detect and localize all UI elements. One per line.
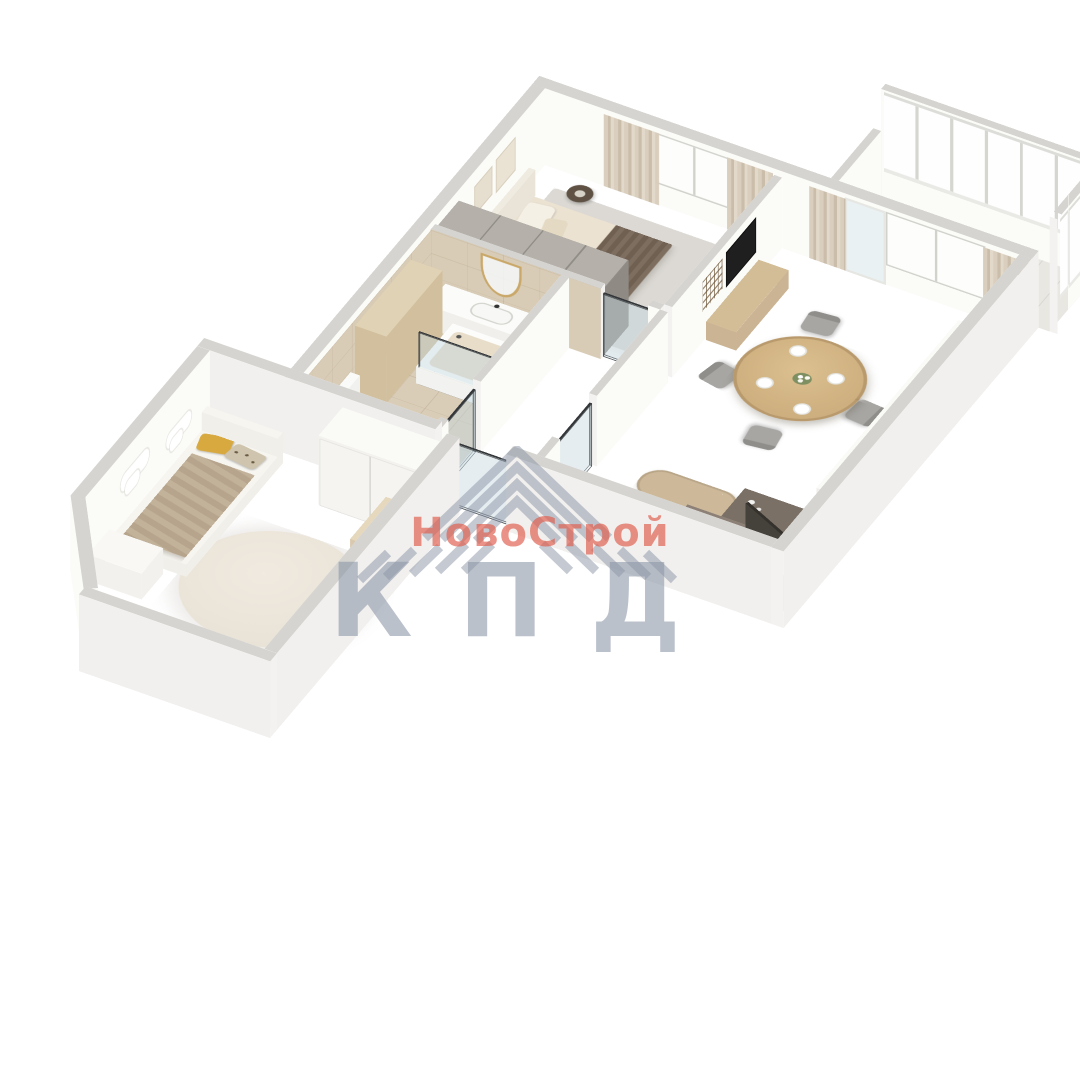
plate [786,343,810,359]
plate [753,375,777,391]
kids-bed-headboard-fs [278,433,283,470]
plate [824,371,848,387]
living-curtain-left [809,186,845,271]
flower-vase [789,371,815,387]
plate [790,401,814,417]
balcony-door [845,197,886,285]
balcony-wall-glazed-e-fcap [1050,216,1058,334]
wing-wall-south-west-fcap [270,653,277,738]
floorplan-screenshot: НовоСтрой КПД [0,0,1080,1080]
wall-south-east-fcap [771,547,784,628]
